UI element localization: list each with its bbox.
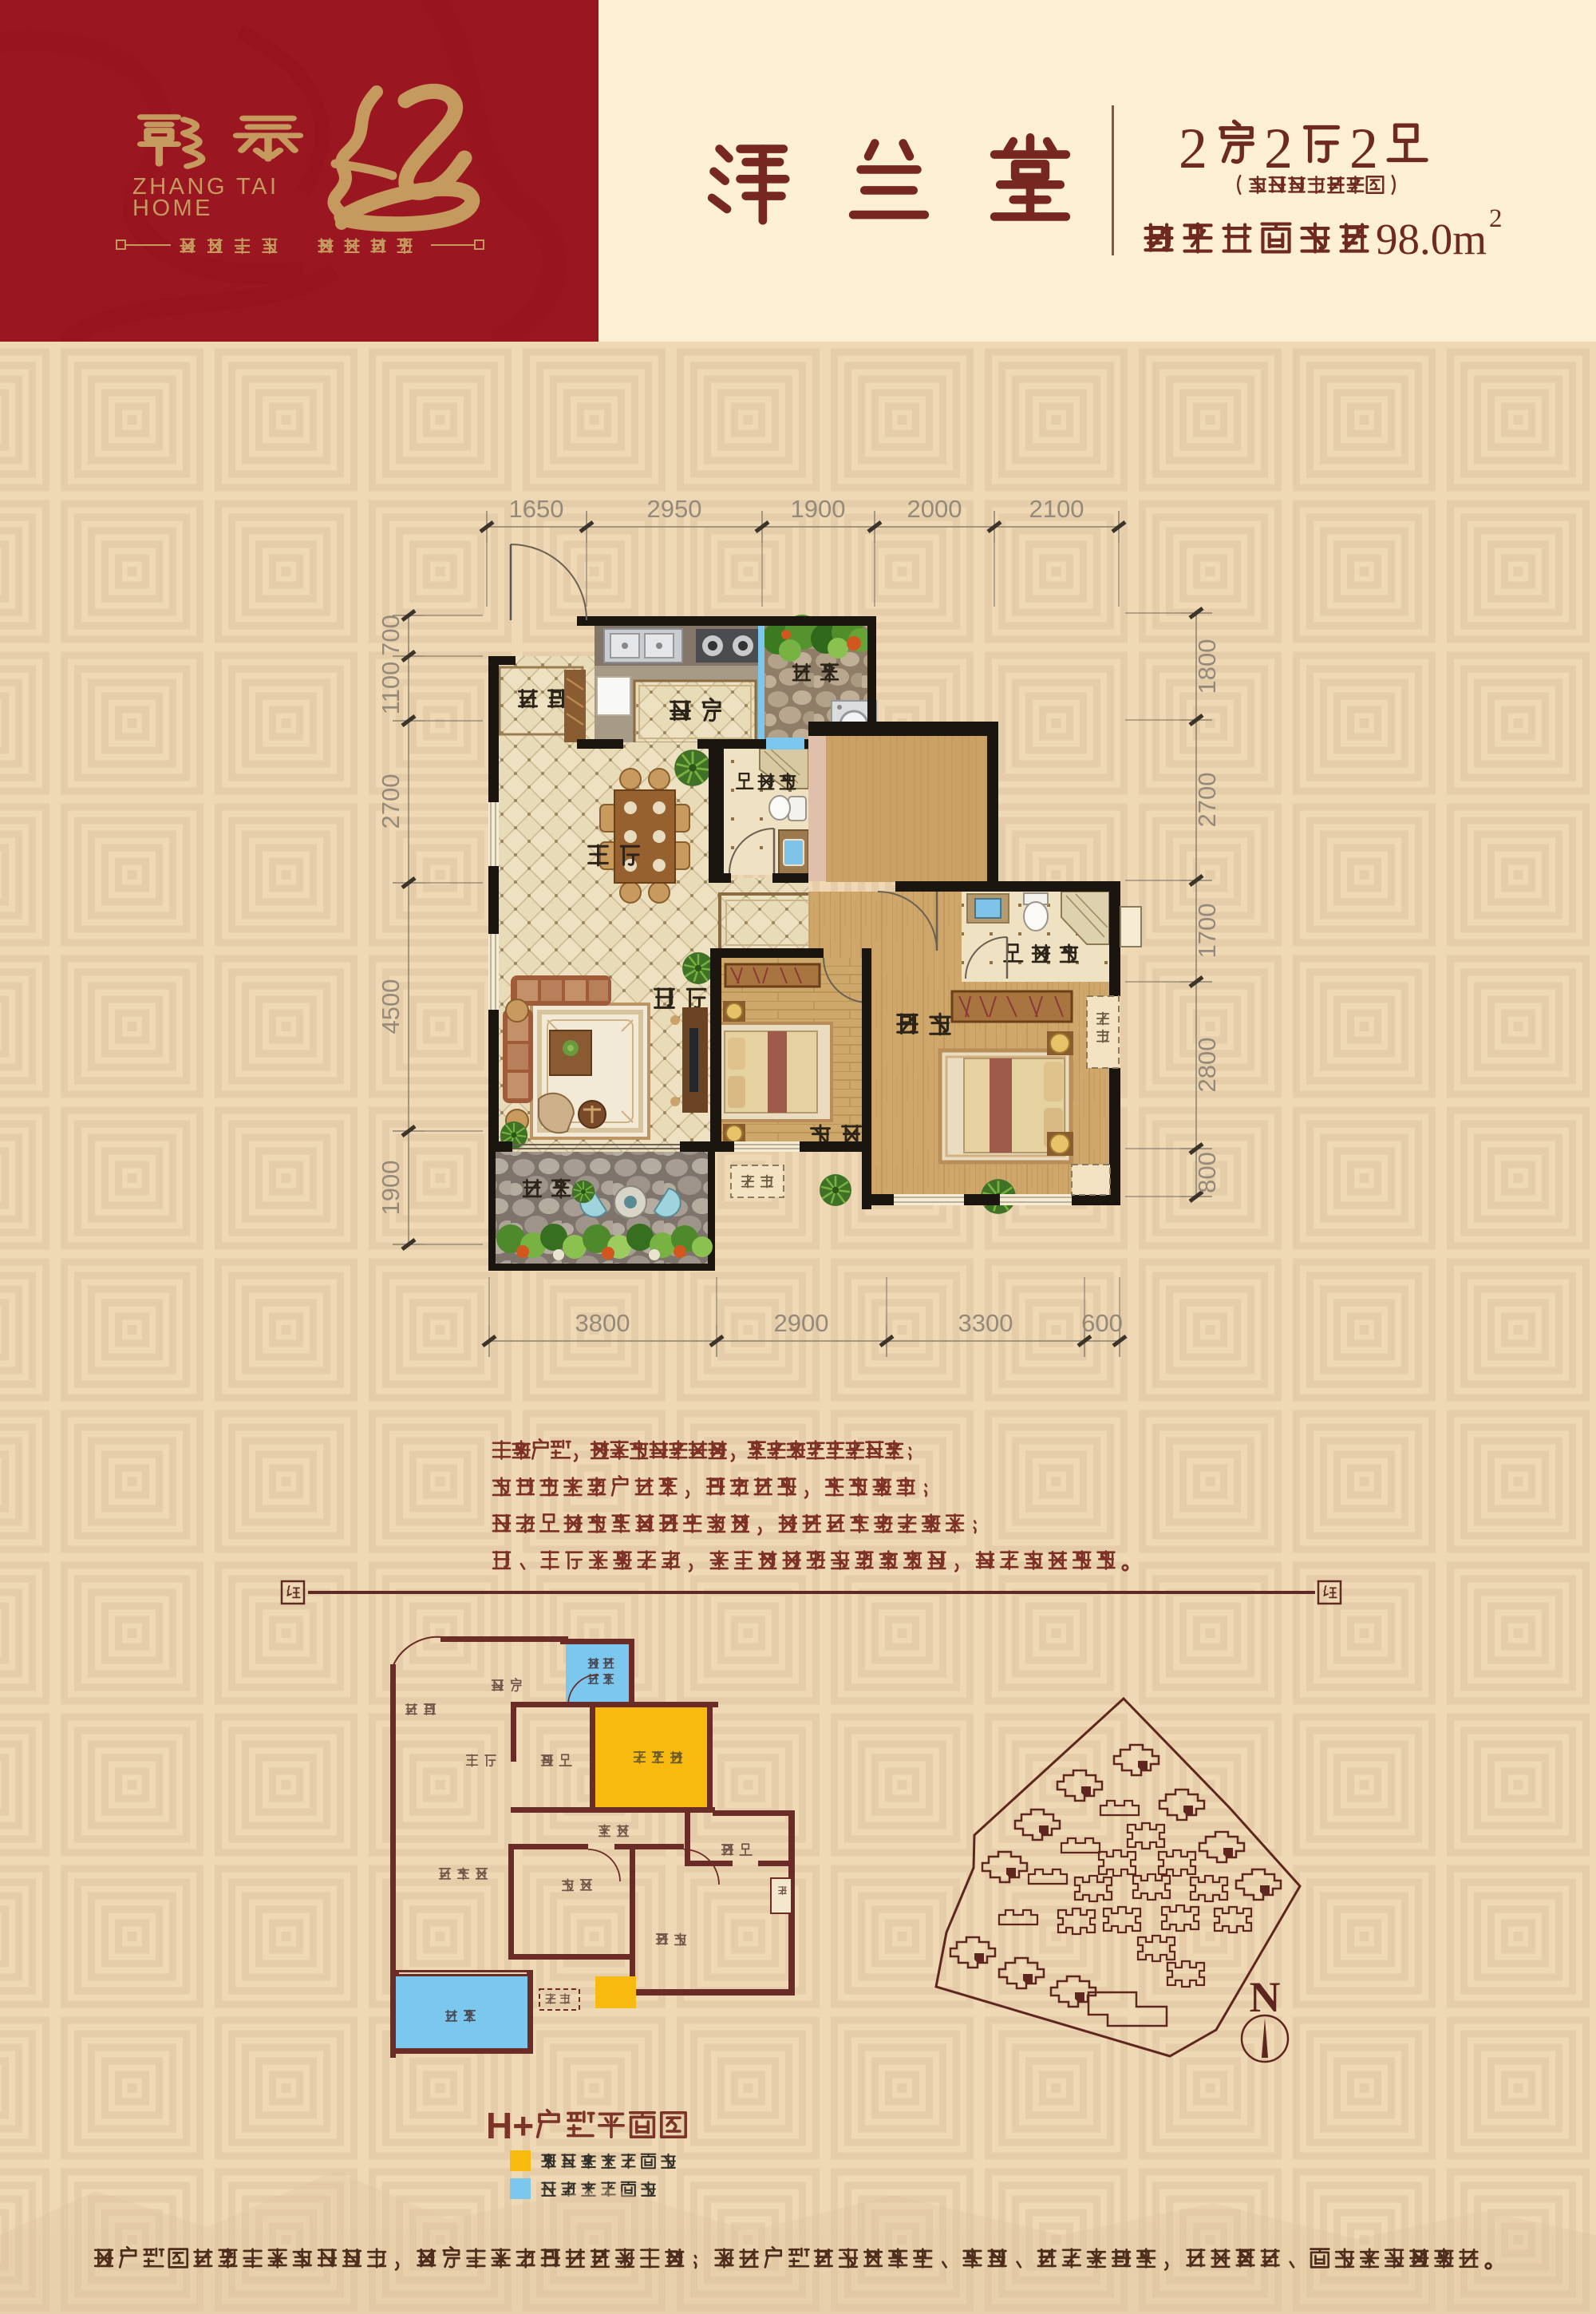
- svg-text:2: 2: [1264, 117, 1293, 180]
- svg-text:2: 2: [1349, 117, 1378, 180]
- svg-text:2900: 2900: [774, 1309, 829, 1337]
- svg-text:1900: 1900: [377, 1161, 405, 1216]
- svg-text:2: 2: [1179, 117, 1207, 180]
- svg-text:3300: 3300: [958, 1309, 1013, 1337]
- svg-text:600: 600: [1081, 1309, 1123, 1337]
- svg-text:3800: 3800: [575, 1309, 630, 1337]
- svg-text:2: 2: [1489, 204, 1503, 233]
- svg-text:2950: 2950: [647, 495, 702, 523]
- svg-text:1100: 1100: [377, 662, 405, 715]
- svg-text:HOME: HOME: [132, 196, 213, 221]
- svg-text:H+: H+: [486, 2105, 534, 2146]
- svg-text:2100: 2100: [1029, 495, 1084, 523]
- svg-text:1900: 1900: [791, 495, 846, 523]
- svg-text:1800: 1800: [1193, 639, 1221, 694]
- svg-text:2700: 2700: [1193, 773, 1221, 828]
- svg-text:1700: 1700: [1193, 904, 1221, 959]
- svg-text:4500: 4500: [377, 979, 405, 1034]
- svg-text:2700: 2700: [377, 774, 405, 829]
- svg-text:800: 800: [1193, 1152, 1221, 1193]
- svg-text:2800: 2800: [1193, 1038, 1221, 1093]
- svg-text:2000: 2000: [907, 495, 962, 523]
- svg-text:98.0m: 98.0m: [1376, 215, 1487, 263]
- svg-text:N: N: [1250, 1973, 1281, 2021]
- svg-text:700: 700: [377, 615, 405, 656]
- svg-text:1650: 1650: [509, 495, 564, 523]
